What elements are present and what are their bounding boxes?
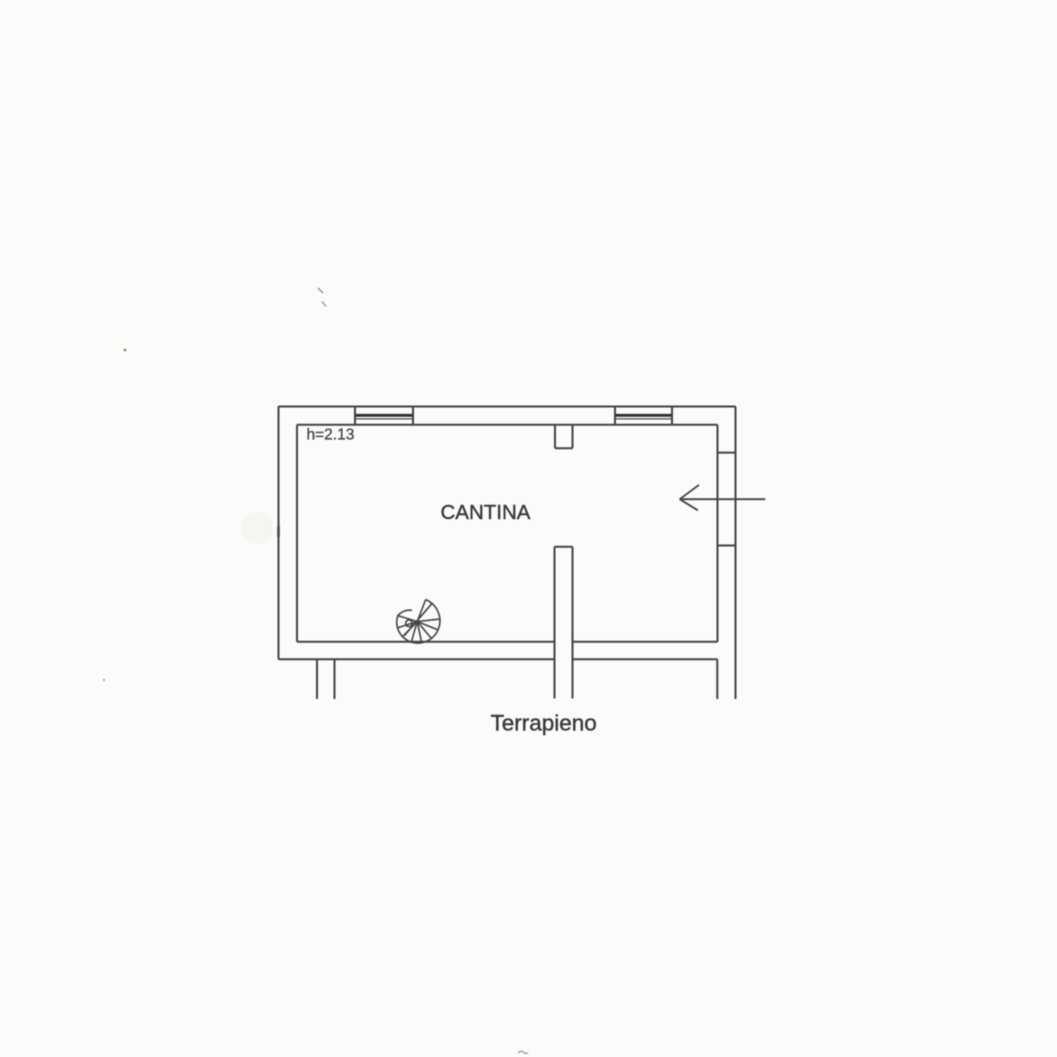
svg-text:Terrapieno: Terrapieno xyxy=(491,711,597,736)
svg-text:h=2.13: h=2.13 xyxy=(307,427,355,444)
svg-text:CANTINA: CANTINA xyxy=(441,501,531,524)
